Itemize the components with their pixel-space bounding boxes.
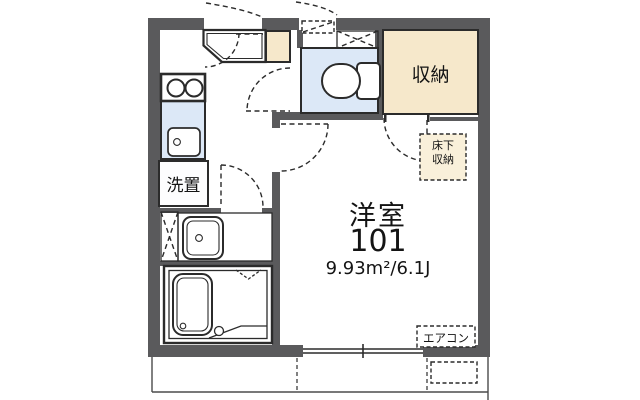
meter-box (296, 2, 337, 33)
window (303, 344, 423, 358)
wall-bottom-left (148, 345, 303, 357)
underfloor-storage-label-line1: 床下 (420, 139, 466, 153)
wall-washroom-top-b (262, 208, 272, 213)
toilet-door-arc (247, 68, 290, 111)
kitchen-sink (168, 128, 200, 156)
wall-top-mid (262, 18, 299, 30)
underfloor-storage-label: 床下 収納 (420, 139, 466, 166)
kitchen (161, 74, 205, 159)
wall-under-closet (430, 117, 478, 121)
bathroom (164, 266, 272, 343)
toilet-bowl (322, 64, 360, 98)
washbasin-door-arc (221, 165, 263, 207)
main-room-area: 9.93m²/6.1J (298, 258, 458, 279)
shoe-cabinet (266, 31, 290, 62)
meter-box-door-arc (296, 2, 337, 15)
wall-right (478, 18, 490, 357)
stove-burner-left (168, 80, 185, 97)
stove-burner-right (186, 80, 203, 97)
main-room-number: 101 (308, 224, 448, 259)
bath-drain-cover (215, 327, 224, 336)
genkan-floor (204, 30, 266, 62)
wall-top-right (336, 18, 490, 30)
balcony (152, 357, 488, 400)
underfloor-storage-label-line2: 収納 (420, 153, 466, 167)
washer-space-label: 洗置 (159, 171, 208, 196)
floor-plan: 収納 洋室 101 9.93m²/6.1J 床下 収納 洗置 エアコン (0, 0, 640, 400)
closet-label: 収納 (383, 60, 478, 87)
wall-room-left (272, 172, 280, 345)
washbasin (183, 217, 223, 259)
outdoor-unit (431, 362, 477, 383)
aircon-label: エアコン (417, 330, 475, 346)
wall-room-left-stub (272, 120, 280, 128)
entrance (204, 3, 291, 67)
bathtub (173, 274, 212, 335)
main-room-door (281, 124, 328, 171)
entrance-door-arc-outside (206, 3, 262, 17)
